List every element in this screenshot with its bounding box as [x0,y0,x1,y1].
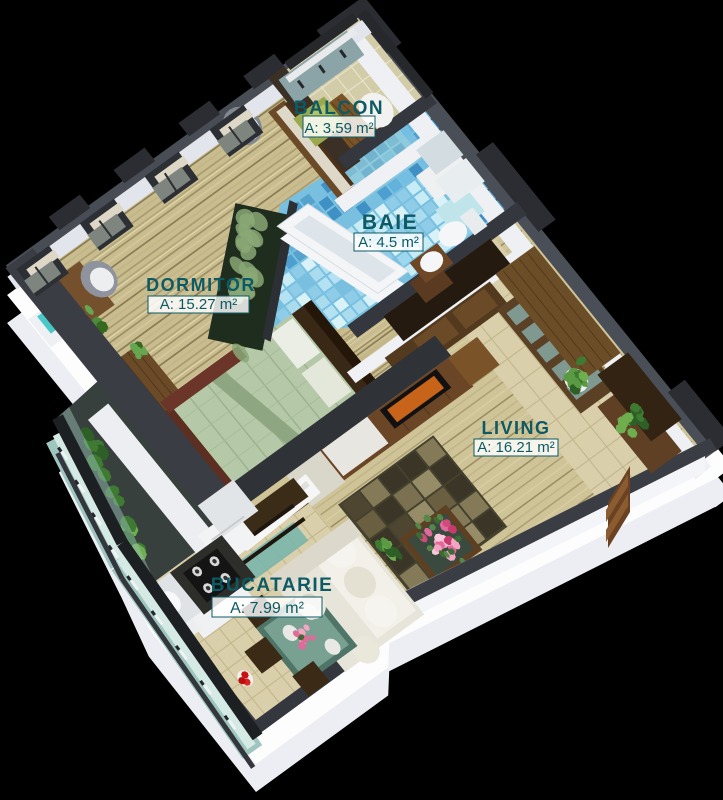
svg-text:A: 16.21 m²: A: 16.21 m² [477,439,555,456]
svg-text:LIVING: LIVING [481,418,550,438]
svg-text:A: 4.5 m²: A: 4.5 m² [358,234,419,251]
svg-text:A: 3.59 m²: A: 3.59 m² [304,120,373,137]
svg-text:DORMITOR: DORMITOR [146,275,256,295]
svg-text:A: 7.99 m²: A: 7.99 m² [230,600,304,617]
svg-text:BAIE: BAIE [362,211,418,234]
svg-text:A: 15.27 m²: A: 15.27 m² [160,296,238,313]
svg-text:BUCATARIE: BUCATARIE [211,575,334,596]
